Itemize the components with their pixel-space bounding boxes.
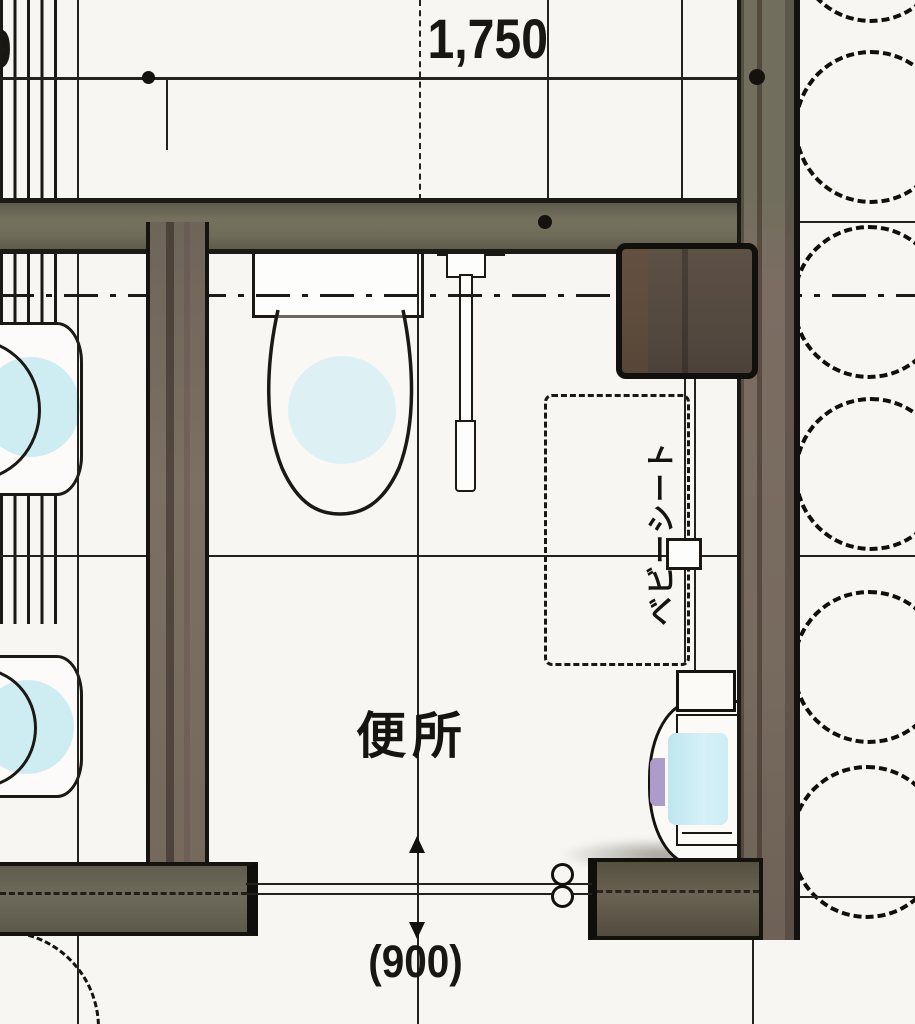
stall-toilet-upper [0,322,83,496]
flush-pipe-lower [455,420,476,492]
grid-line-vertical-center [417,240,419,1024]
flush-pipe [459,274,473,428]
floor-plan-canvas: ベビーシート 1,750 0 (900) 便所 [0,0,915,1024]
dashed-circle [792,590,915,744]
duct-column [616,243,758,379]
dimension-arrow-up [409,836,425,853]
door-swing-arc [0,930,100,1024]
corner-basin-bracket [676,670,736,712]
wall-face-line [694,360,696,705]
door-threshold-lower [246,893,592,895]
door-hinge-symbol [551,885,574,908]
room-label: 便所 [356,696,468,768]
stall-partition-hatch [0,0,62,624]
grid-line-vertical-right-upper [681,0,683,198]
grid-line-right-1 [790,221,915,223]
dashed-circle [794,0,915,23]
junction-dot [142,71,155,84]
baby-seat-label: ベビーシート [645,418,679,648]
grid-line-right-2 [790,896,915,898]
junction-dot [538,215,552,229]
door-threshold-upper [246,883,592,885]
dimension-line-top [0,77,748,80]
toilet-bowl [262,306,418,518]
grid-line-vertical-right-mid [684,377,686,662]
wall-center-dash [0,892,247,895]
door-hinge-symbol [551,863,574,886]
stall-toilet-lower [0,655,83,798]
dimension-text-partial: 0 [0,16,12,81]
dimension-text-1750: 1,750 [402,6,548,71]
junction-dot [749,69,765,85]
corner-basin-highlight [668,733,728,825]
wall-partition-left [146,222,209,868]
wall-center-dash [597,890,759,893]
dashed-circle [792,225,915,379]
wall-bottom-right [588,858,763,940]
corner-basin-accent [650,758,665,806]
dashed-circle [794,50,915,204]
dimension-tick [166,78,168,150]
wall-right [737,0,800,940]
grid-line-below-wall-right [752,936,754,1024]
dimension-text-900: (900) [346,936,486,988]
wall-bottom-left [0,862,258,936]
dashed-circle [794,397,915,551]
corner-basin-detail-line [682,832,732,834]
